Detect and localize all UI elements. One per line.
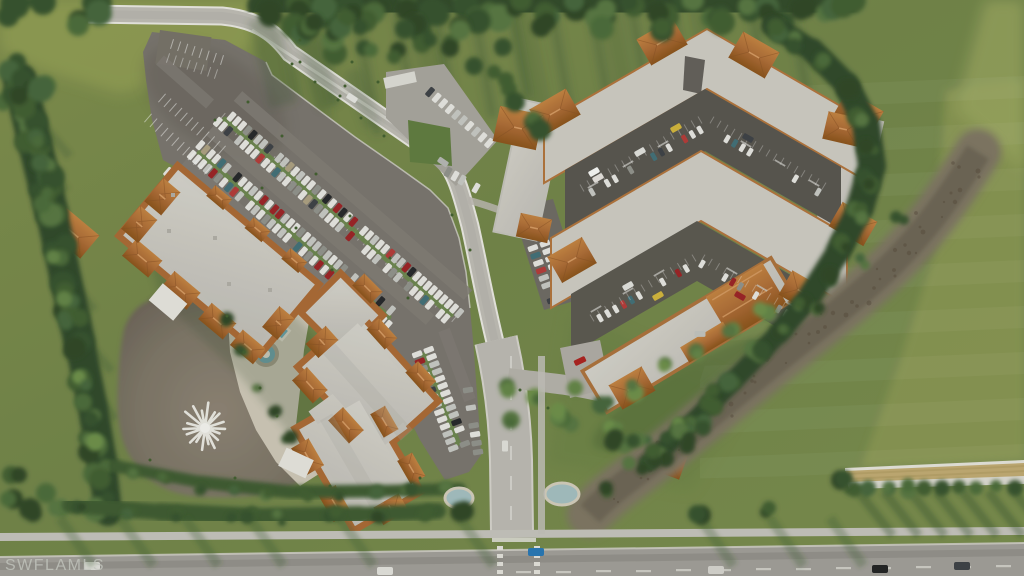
svg-text:SWFLAMLS: SWFLAMLS [5, 557, 105, 574]
